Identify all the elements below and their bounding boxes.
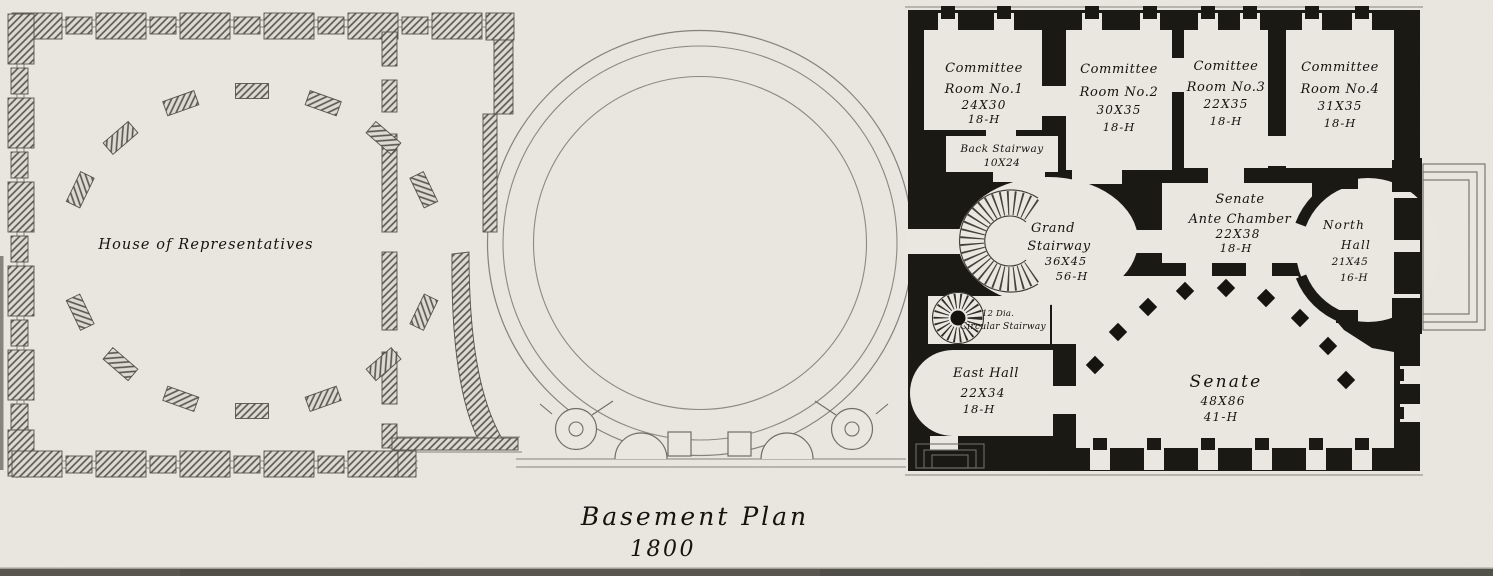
- senate-ante-chamber-height: 18-H: [1220, 241, 1253, 255]
- door-room3-room4: [1268, 136, 1286, 166]
- committee-room-2-name: Committee: [1080, 62, 1158, 77]
- door-room1-backstair: [986, 126, 1016, 138]
- back-stairway-size: 10X24: [984, 157, 1021, 169]
- committee-room-1-size: 24X30: [960, 98, 1006, 112]
- floor-plan-drawing: House of Representatives Committee Room …: [0, 0, 1493, 576]
- committee-room-1-height: 18-H: [968, 112, 1001, 126]
- door-room2-room3: [1172, 58, 1184, 92]
- back-stairway-name: Back Stairway: [959, 143, 1044, 155]
- east-hall-height: 18-H: [963, 402, 996, 416]
- circular-stairway-label-1: 12 Dia.: [982, 309, 1014, 319]
- committee-room-4-name: Committee: [1301, 60, 1379, 75]
- senate-chamber-size: 48X86: [1199, 394, 1245, 408]
- north-hall-height: 16-H: [1340, 272, 1368, 284]
- committee-room-3-number: Room No.3: [1186, 80, 1266, 95]
- senate-chamber-name: Senate: [1190, 372, 1263, 392]
- door-ante-south-2: [1246, 261, 1272, 278]
- door-room1-room2: [1042, 86, 1066, 116]
- committee-room-2-size: 30X35: [1096, 103, 1141, 117]
- committee-room-3-height: 18-H: [1210, 114, 1243, 128]
- grand-stairway-size: 36X45: [1045, 254, 1087, 268]
- north-hall-name2: Hall: [1340, 238, 1371, 252]
- committee-room-4-size: 31X35: [1317, 99, 1362, 113]
- committee-room-4-height: 18-H: [1324, 116, 1357, 130]
- north-hall-name: North: [1322, 218, 1365, 232]
- passage-back-stair: [993, 168, 1045, 182]
- senate-ante-chamber-name: Senate: [1215, 192, 1264, 207]
- room-committee-2: [1066, 30, 1172, 170]
- passage-east: [1136, 230, 1164, 253]
- plan-year: 1800: [630, 537, 696, 562]
- grand-stairway-name: Grand: [1031, 221, 1075, 236]
- passage-west: [906, 229, 962, 254]
- basement-plan-figure: House of Representatives Committee Room …: [0, 0, 1493, 576]
- plan-title: Basement Plan: [580, 502, 809, 531]
- committee-room-1-name: Committee: [945, 61, 1023, 76]
- door-easthall-south: [930, 436, 958, 450]
- committee-room-4-number: Room No.4: [1300, 82, 1380, 97]
- senate-chamber-height: 41-H: [1203, 410, 1239, 424]
- east-hall-name: East Hall: [952, 366, 1019, 381]
- committee-room-2-height: 18-H: [1103, 120, 1136, 134]
- senate-ante-chamber-name2: Ante Chamber: [1188, 212, 1292, 227]
- grand-stairway-name2: Stairway: [1027, 239, 1090, 254]
- door-ante-south-1: [1186, 261, 1212, 278]
- door-ante-north: [1208, 166, 1244, 185]
- grand-stairway-height: 56-H: [1056, 269, 1089, 283]
- committee-room-1-number: Room No.1: [944, 82, 1024, 97]
- north-hall-size: 21X45: [1331, 256, 1369, 268]
- committee-room-2-number: Room No.2: [1079, 85, 1159, 100]
- east-hall-size: 22X34: [959, 386, 1005, 400]
- passage-room2: [1072, 166, 1122, 184]
- circular-stairway-label-2: Circular Stairway: [960, 322, 1047, 332]
- door-easthall-senate: [1045, 386, 1079, 414]
- committee-room-3-name: Comittee: [1194, 59, 1259, 74]
- senate-ante-chamber-size: 22X38: [1214, 227, 1260, 241]
- committee-room-3-size: 22X35: [1202, 97, 1248, 111]
- house-of-representatives-label: House of Representatives: [97, 237, 313, 253]
